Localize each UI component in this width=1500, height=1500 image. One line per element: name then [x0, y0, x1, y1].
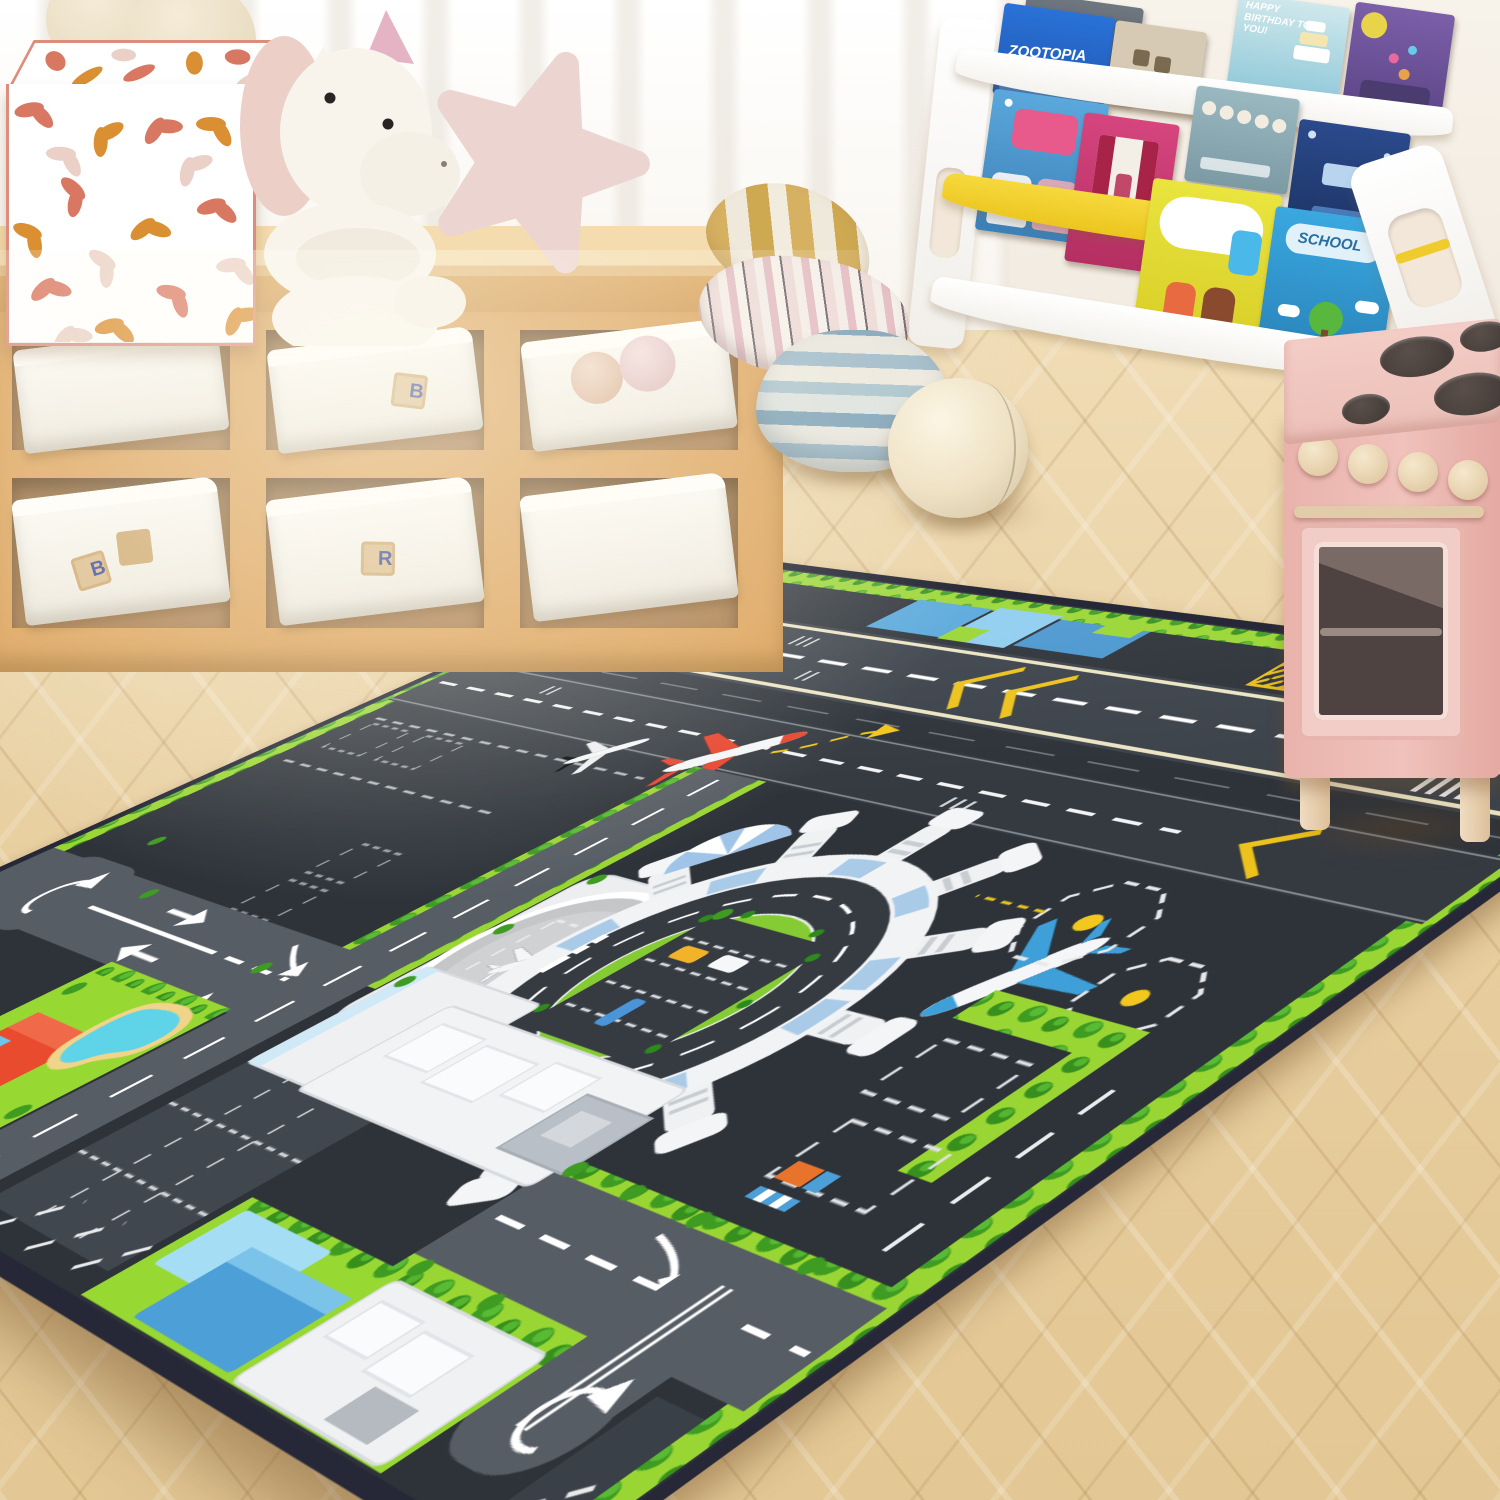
- stove-burner: [1380, 333, 1454, 381]
- stove-burner: [1342, 392, 1390, 427]
- kitchen-front: [1284, 414, 1500, 778]
- oven-window: [1314, 542, 1448, 720]
- alphabet-block: R: [361, 541, 396, 576]
- book-rack: ZOOTOPIA HAPPY BIRTHDAY TO YOU!: [924, 0, 1472, 352]
- kitchen-knob: [1448, 460, 1488, 500]
- leaf-pattern: [9, 84, 255, 342]
- unicorn-eye: [383, 119, 394, 130]
- alphabet-block: B: [70, 550, 112, 592]
- storage-bin: B: [11, 476, 231, 626]
- alphabet-block: [116, 528, 154, 566]
- kitchen-knob: [1398, 452, 1438, 492]
- play-kitchen: [1284, 318, 1500, 848]
- storage-bin: [519, 472, 739, 622]
- oven-handle: [1294, 506, 1484, 518]
- playroom-scene: .wsm path{stroke:#c9ced2;stroke-width:2;…: [0, 0, 1500, 1500]
- stove-burner: [1460, 319, 1500, 354]
- stove-burner: [1434, 369, 1500, 419]
- cream-ball: [888, 378, 1028, 518]
- star-cushion: [398, 52, 672, 278]
- oven-door: [1298, 524, 1464, 740]
- kitchen-knob: [1348, 444, 1388, 484]
- leaf-pattern-box: [6, 84, 256, 346]
- pastel-ball: [568, 349, 626, 407]
- alphabet-block: B: [390, 372, 428, 410]
- storage-bin: R: [265, 476, 485, 626]
- unicorn-eye: [325, 93, 336, 104]
- unicorn-foot: [394, 276, 466, 328]
- book-stories: [1184, 85, 1300, 195]
- oven-rack: [1320, 628, 1442, 636]
